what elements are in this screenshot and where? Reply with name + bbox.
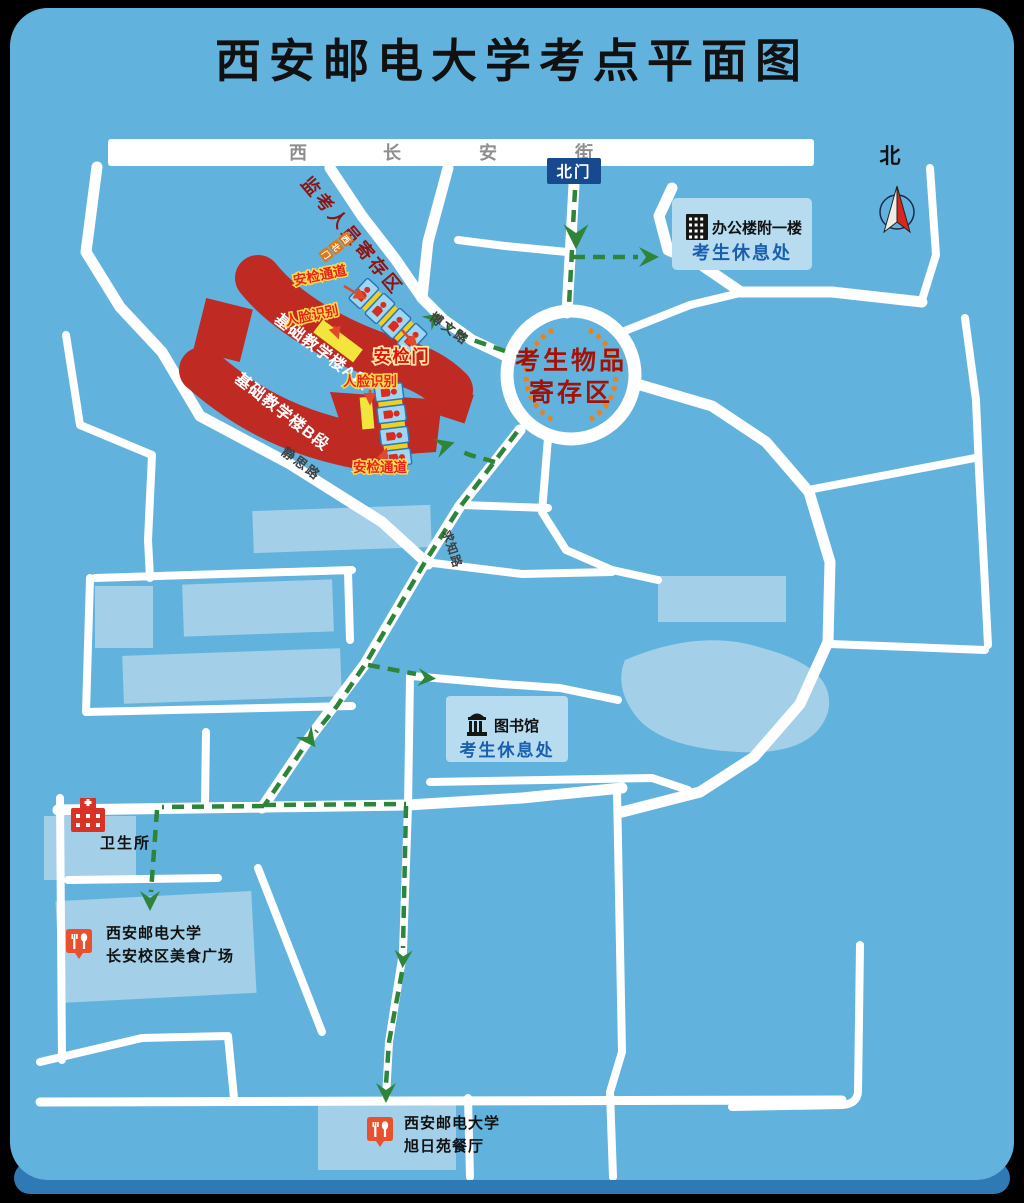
- office-rest-area-note: 考生休息处: [692, 242, 792, 263]
- office-rest-area-box: 办公楼附一楼 考生休息处: [672, 198, 812, 270]
- face-recognition-lower-label: 人脸识别: [343, 373, 397, 389]
- canteen-line1: 西安邮电大学: [404, 1114, 500, 1132]
- clinic-label: 卫生所: [100, 834, 151, 852]
- security-gate-label: 安检门: [374, 346, 431, 366]
- svg-text:寄存区: 寄存区: [529, 378, 613, 407]
- street-char-3: 安: [479, 142, 497, 163]
- food-plaza-line1: 西安邮电大学: [106, 924, 202, 942]
- library-rest-area-box: 图书馆 考生休息处: [446, 696, 568, 762]
- canteen-line2: 旭日苑餐厅: [403, 1137, 484, 1155]
- food-plaza-line2: 长安校区美食广场: [106, 947, 234, 965]
- office-building-icon: [686, 214, 708, 240]
- north-gate-label: 北门: [556, 162, 591, 181]
- page-title: 西安邮电大学考点平面图: [215, 35, 809, 87]
- map-panel: [10, 8, 1014, 1180]
- street-char-1: 西: [289, 143, 307, 163]
- street-char-2: 长: [383, 143, 402, 163]
- library-rest-area-note: 考生休息处: [459, 740, 555, 760]
- west-changan-street-band: [108, 139, 814, 166]
- svg-text:考生物品: 考生物品: [515, 347, 627, 375]
- compass-north-label: 北: [880, 145, 901, 168]
- office-rest-area-name: 办公楼附一楼: [712, 219, 802, 237]
- north-gate-badge: 北门: [547, 158, 601, 184]
- library-name: 图书馆: [494, 717, 539, 735]
- exam-site-map-poster: 西 长 安 街 基础教学楼A段 基础教学楼B段: [0, 0, 1024, 1203]
- security-channel-lower-label: 安检通道: [353, 459, 407, 475]
- campus-map-svg: 西 长 安 街 基础教学楼A段 基础教学楼B段: [0, 0, 1024, 1203]
